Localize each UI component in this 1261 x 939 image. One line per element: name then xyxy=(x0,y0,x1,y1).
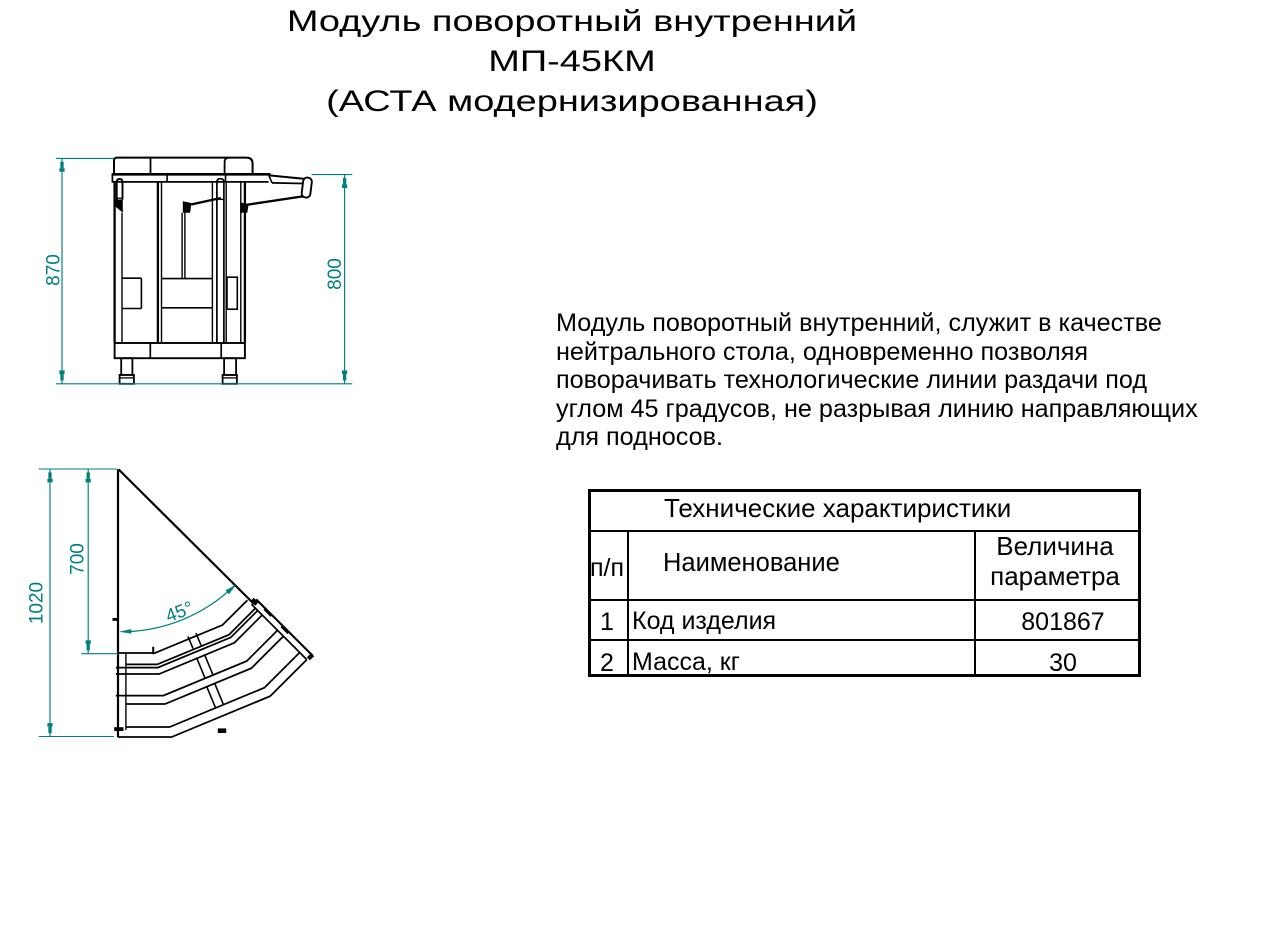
svg-text:870: 870 xyxy=(44,254,65,286)
svg-text:45°: 45° xyxy=(162,597,196,627)
svg-text:1020: 1020 xyxy=(27,582,48,624)
svg-text:700: 700 xyxy=(68,543,89,575)
svg-text:800: 800 xyxy=(325,258,346,290)
